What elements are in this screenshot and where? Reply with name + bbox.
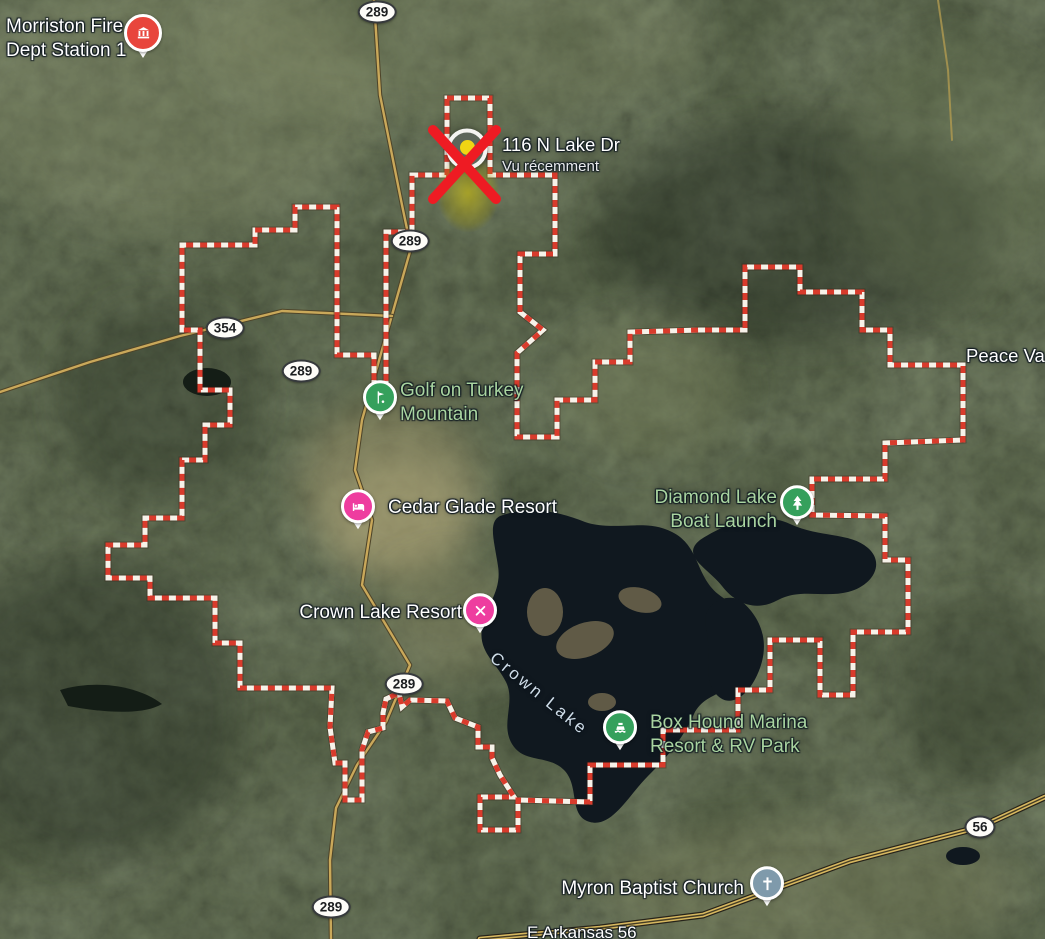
route-shield-289-west: 289 (282, 360, 321, 383)
selected-place-name: 116 N Lake Dr (502, 134, 620, 155)
poi-label-cedar-glade[interactable]: Cedar Glade Resort (388, 496, 557, 520)
terrain-patch (560, 320, 740, 460)
poi-label-golf[interactable]: Golf on Turkey Mountain (400, 379, 524, 427)
road-354-casing (0, 311, 392, 392)
city-boundary-white (108, 98, 963, 830)
poi-label-box-hound[interactable]: Box Hound Marina Resort & RV Park (650, 711, 807, 759)
street-label: E Arkansas 56 (527, 923, 637, 939)
city-boundary-red-dashes (108, 98, 963, 830)
route-shield-354: 354 (206, 317, 245, 340)
recent-place-dot-icon (460, 140, 475, 155)
route-shield-289-upper: 289 (391, 230, 430, 253)
terrain-patch (900, 600, 1045, 780)
poi-pin-crown-lake-resort[interactable] (463, 593, 497, 627)
resort-icon (463, 593, 497, 627)
terrain-patch (200, 0, 700, 120)
crown-lake-water (60, 368, 980, 865)
road-354 (0, 311, 392, 392)
poi-label-myron-church[interactable]: Myron Baptist Church (561, 877, 744, 901)
poi-pin-fire-station[interactable] (124, 14, 162, 52)
route-shield-56: 56 (964, 816, 995, 839)
lodging-icon (341, 489, 375, 523)
city-boundary-shadow (108, 98, 963, 830)
poi-label-diamond-lake[interactable]: Diamond Lake Boat Launch (654, 486, 777, 534)
poi-pin-cedar-glade[interactable] (341, 489, 375, 523)
terrain-patch (0, 560, 240, 860)
selected-place-status: Vu récemment (502, 157, 620, 177)
poi-pin-diamond-lake[interactable] (780, 485, 814, 519)
poi-pin-box-hound[interactable] (603, 710, 637, 744)
poi-label-crown-lake-resort[interactable]: Crown Lake Resort (299, 601, 462, 625)
church-icon (750, 866, 784, 900)
park-tree-icon (780, 485, 814, 519)
marina-icon (603, 710, 637, 744)
satellite-map-canvas[interactable]: 116 N Lake Dr Vu récemment Morriston Fir… (0, 0, 1045, 939)
poi-label-fire-station[interactable]: Morriston Fire Dept Station 1 (6, 15, 126, 63)
recent-place-marker[interactable] (447, 129, 488, 170)
road-minor (938, 0, 952, 140)
poi-pin-golf[interactable] (363, 380, 397, 414)
route-shield-289-north: 289 (358, 1, 397, 24)
terrain-patch (600, 120, 1000, 340)
terrain-patch (840, 40, 1045, 300)
fire-station-icon (124, 14, 162, 52)
water-label: Crown Lake (486, 648, 592, 740)
poi-pin-myron-church[interactable] (750, 866, 784, 900)
selected-place-label[interactable]: 116 N Lake Dr Vu récemment (502, 133, 620, 177)
road-289-casing (330, 0, 411, 939)
poi-label-peace-valley[interactable]: Peace Va (966, 344, 1045, 368)
route-shield-289-south: 289 (312, 896, 351, 919)
road-289 (330, 0, 411, 939)
golf-icon (363, 380, 397, 414)
route-shield-289-center: 289 (385, 673, 424, 696)
